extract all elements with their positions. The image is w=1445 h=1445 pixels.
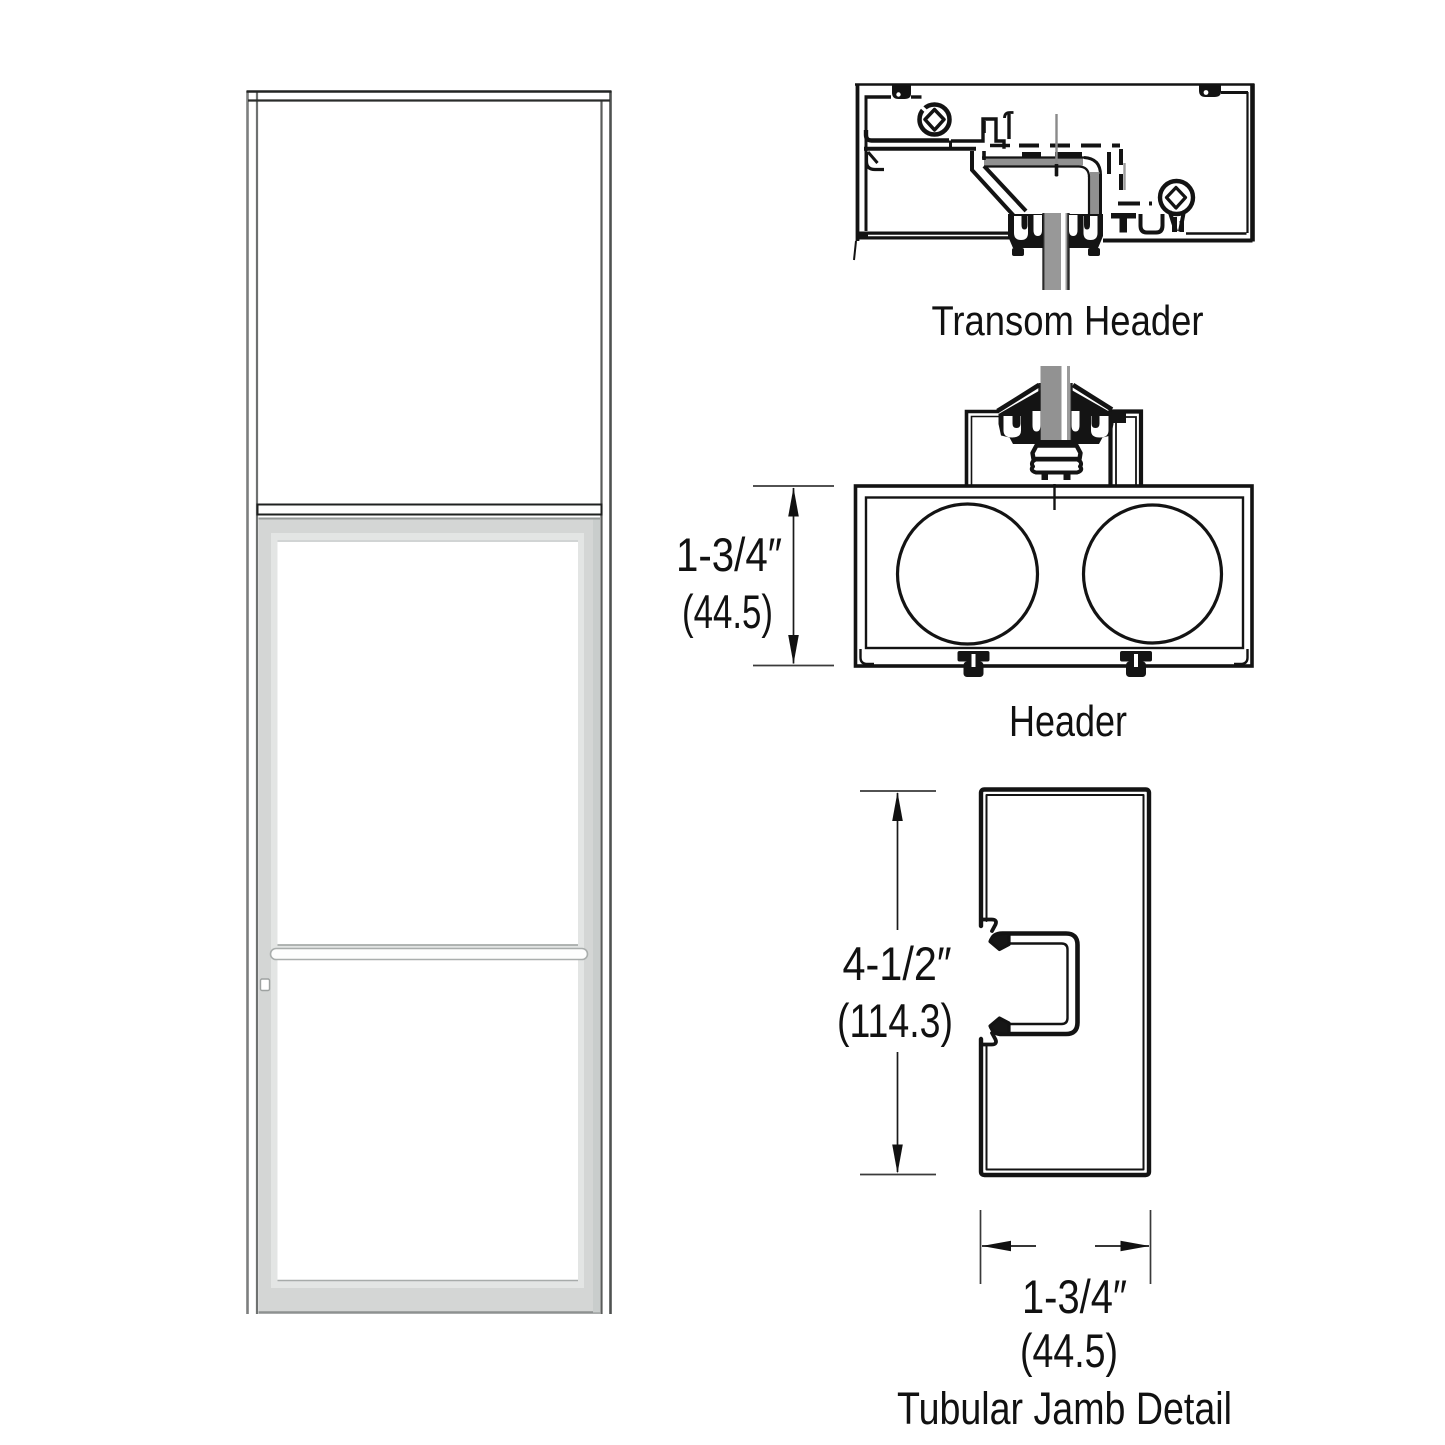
svg-text:Transom Header: Transom Header <box>932 297 1204 344</box>
svg-text:(44.5): (44.5) <box>1020 1324 1118 1377</box>
svg-text:4-1/2″: 4-1/2″ <box>843 937 952 990</box>
svg-text:Tubular Jamb Detail: Tubular Jamb Detail <box>897 1383 1232 1434</box>
svg-text:(114.3): (114.3) <box>837 994 953 1047</box>
svg-text:Header: Header <box>1009 697 1127 746</box>
svg-text:1-3/4″: 1-3/4″ <box>1022 1270 1127 1323</box>
svg-text:1-3/4″: 1-3/4″ <box>676 528 782 581</box>
svg-text:(44.5): (44.5) <box>682 585 773 638</box>
